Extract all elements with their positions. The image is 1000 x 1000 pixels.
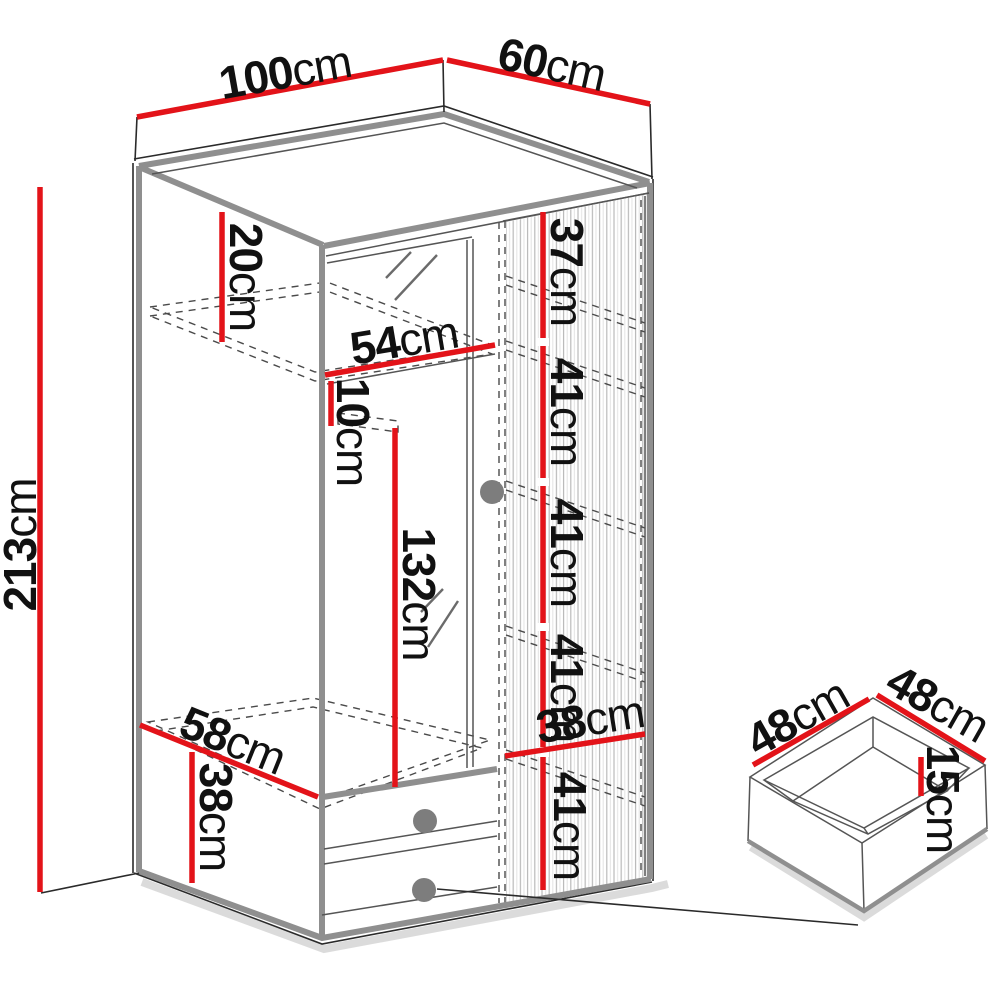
- wardrobe-dimension-diagram: 100cm 60cm 213cm 20cm 54cm 10cm 132cm 37…: [0, 0, 1000, 1000]
- drawer-knob-lower: [412, 878, 436, 902]
- label-132cm: 132cm: [393, 527, 445, 660]
- label-20cm: 20cm: [220, 223, 272, 332]
- drawer-knob-upper: [413, 809, 437, 833]
- label-15cm: 15cm: [917, 745, 969, 854]
- label-41cm-4: 41cm: [544, 772, 596, 881]
- label-37cm: 37cm: [541, 218, 593, 327]
- label-60cm: 60cm: [493, 27, 610, 101]
- label-41cm-1: 41cm: [541, 358, 593, 467]
- label-38cm-left: 38cm: [190, 763, 242, 872]
- diagram-canvas: 100cm 60cm 213cm 20cm 54cm 10cm 132cm 37…: [0, 0, 1000, 1000]
- label-100cm: 100cm: [215, 35, 355, 109]
- fluted-door-knob: [480, 480, 504, 504]
- label-41cm-2: 41cm: [541, 499, 593, 608]
- label-10cm: 10cm: [327, 378, 379, 487]
- label-213cm: 213cm: [0, 478, 46, 611]
